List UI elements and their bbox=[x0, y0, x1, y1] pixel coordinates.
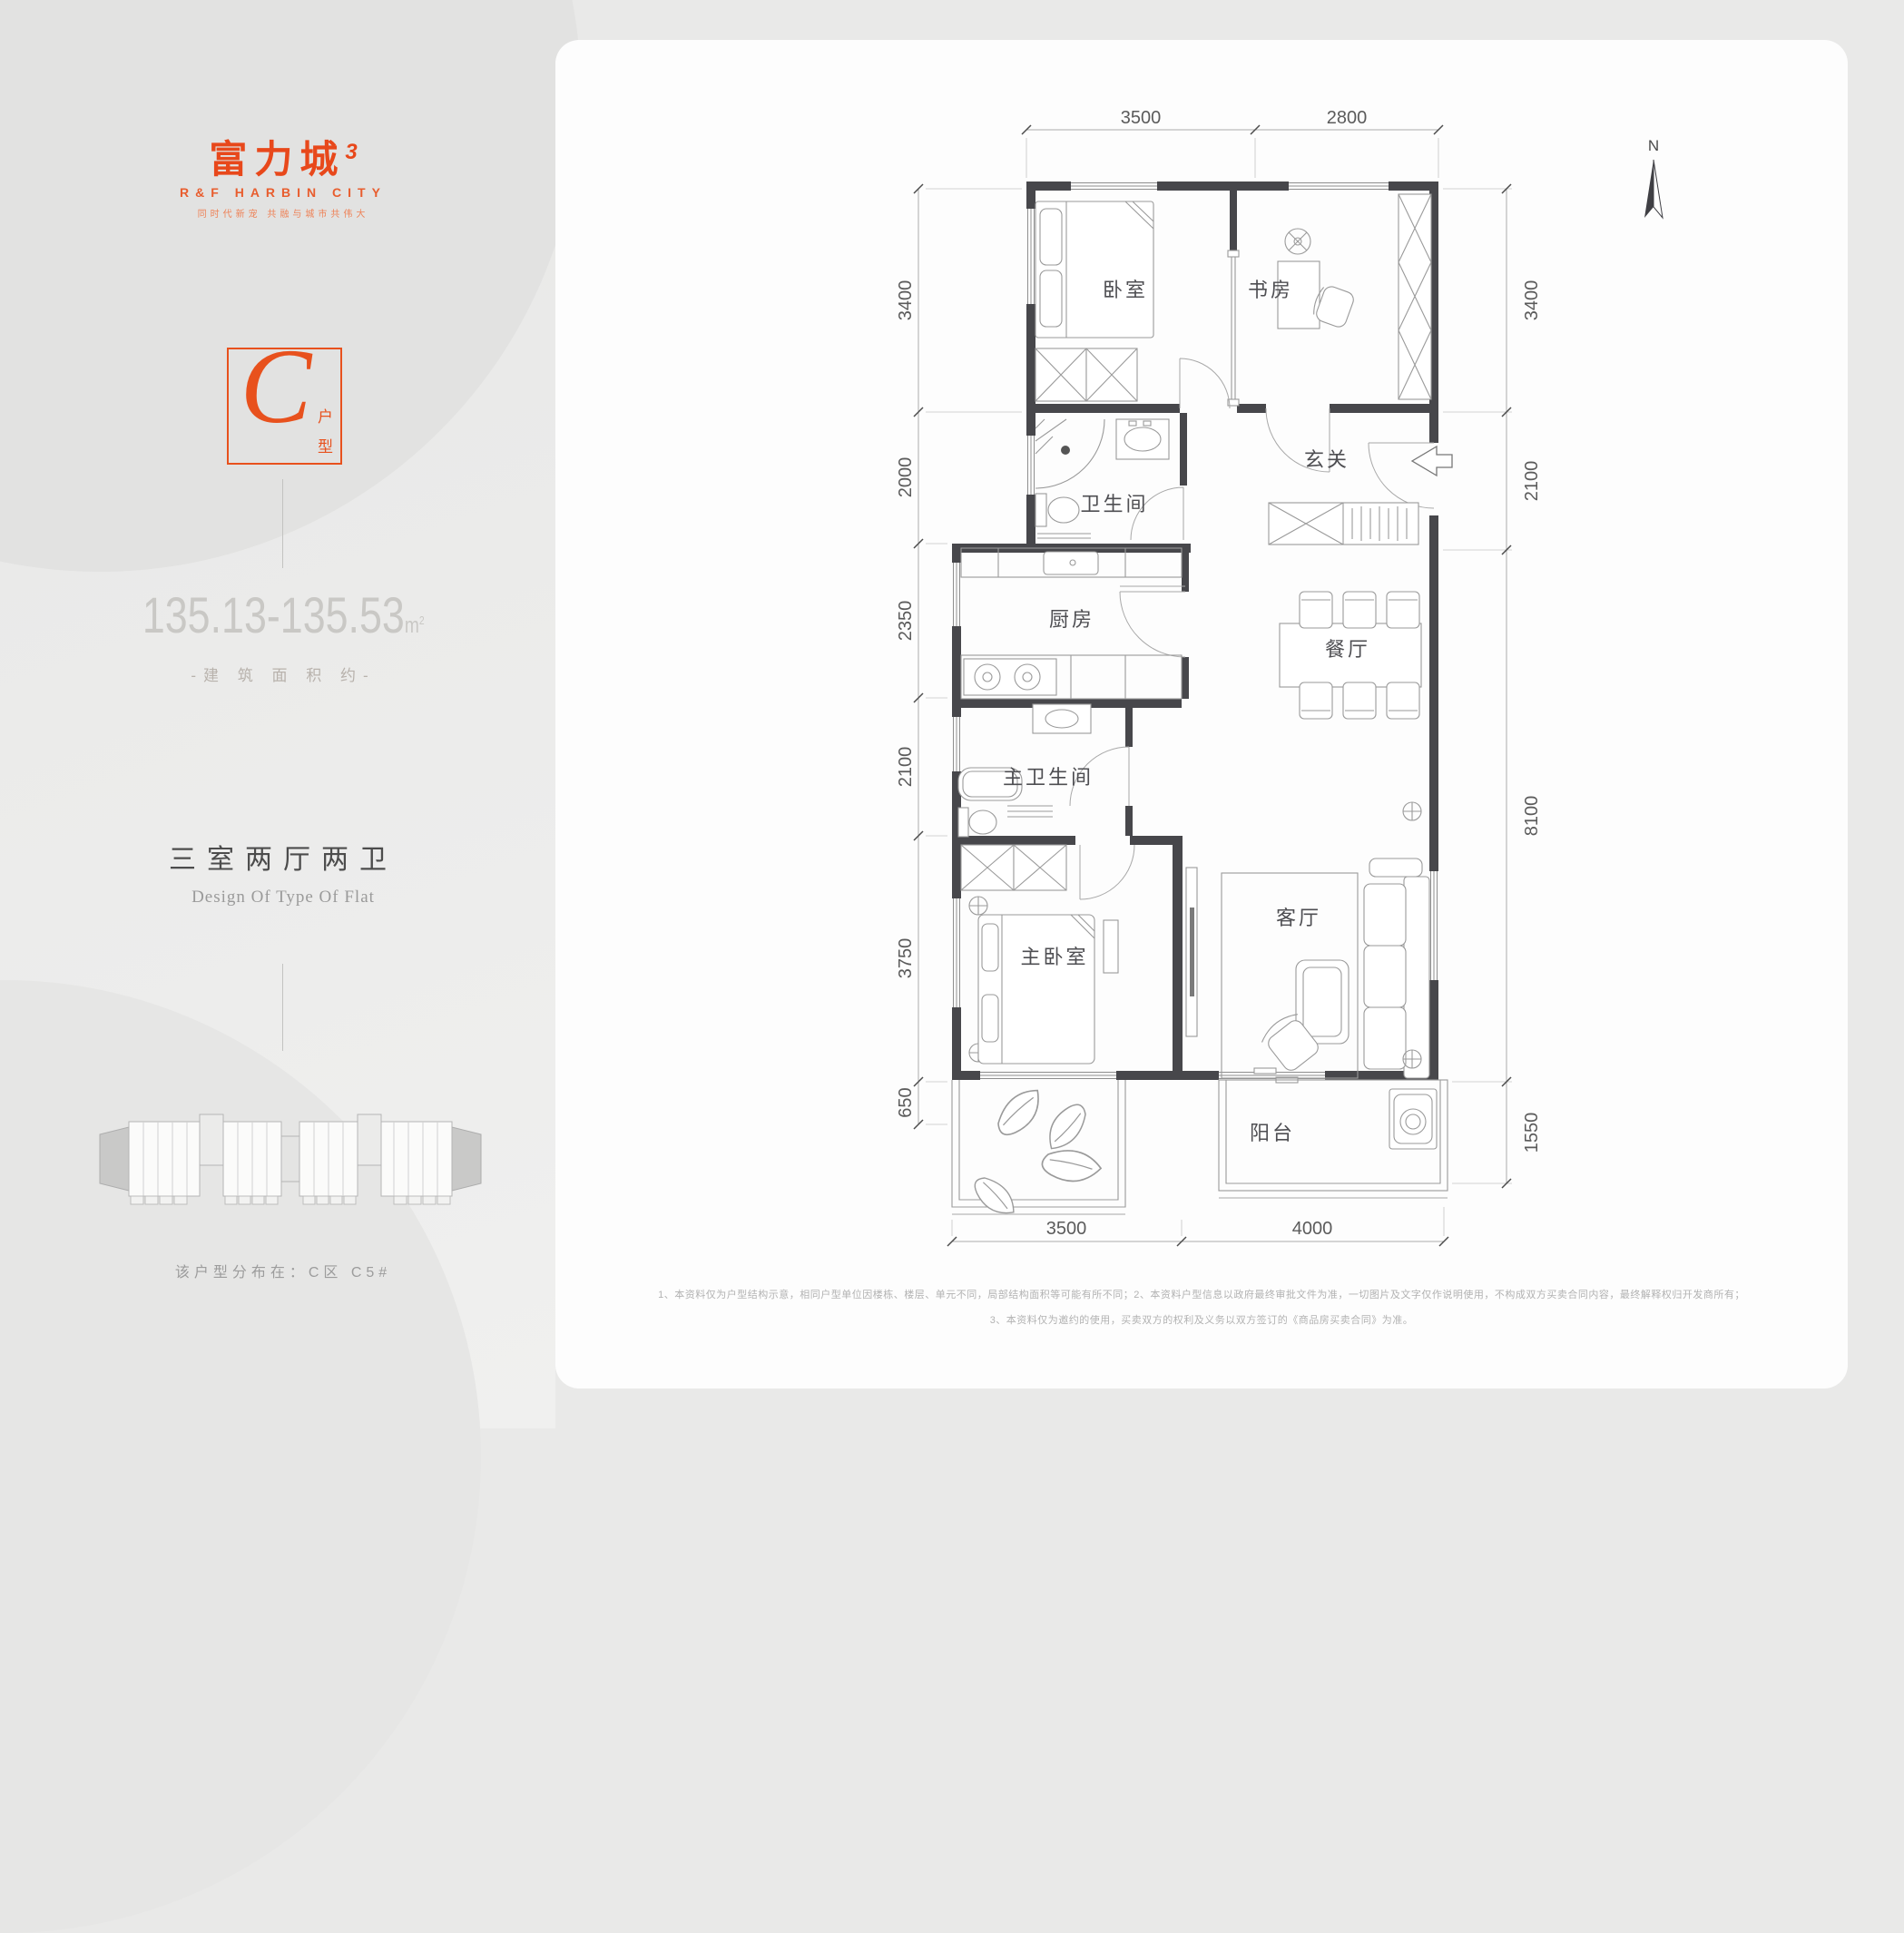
area-value: 135.13-135.53 bbox=[142, 586, 405, 643]
area-range: 135.13-135.53m2 bbox=[5, 585, 561, 644]
layout-subtitle: Design Of Type Of Flat bbox=[5, 888, 561, 908]
brand-logo-main: 富力城 bbox=[209, 138, 345, 181]
unit-type-char-2: 型 bbox=[318, 439, 333, 455]
disclaimer-line-1: 1、本资料仅为户型结构示意，相同户型单位因楼栋、楼层、单元不同，局部结构面积等可… bbox=[555, 1287, 1848, 1301]
brand-logo-sup: 3 bbox=[345, 140, 357, 164]
unit-type-char-1: 户 bbox=[318, 409, 333, 425]
brand-logo: 富力城3 bbox=[5, 129, 561, 184]
brand-column: 富力城3 R&F HARBIN CITY 同时代新宠 共融与城市共伟大 C 户 … bbox=[5, 0, 561, 1428]
unit-type-badge: C 户 型 bbox=[227, 348, 342, 465]
distribution-note: 该户型分布在：C区 C5# bbox=[5, 1260, 561, 1281]
layout-title: 三室两厅两卫 bbox=[5, 837, 561, 877]
floorplan-card bbox=[555, 40, 1848, 1388]
brand-logo-english: R&F HARBIN CITY bbox=[5, 185, 561, 200]
divider-line-bottom bbox=[282, 964, 283, 1051]
area-caption: -建 筑 面 积 约- bbox=[5, 662, 561, 685]
area-unit: m2 bbox=[405, 613, 425, 638]
unit-type-letter: C bbox=[231, 322, 321, 451]
disclaimer-line-2: 3、本资料仅为邀约的使用，买卖双方的权利及义务以双方签订的《商品房买卖合同》为准… bbox=[555, 1312, 1848, 1327]
building-locator bbox=[91, 1082, 490, 1241]
brand-slogan: 同时代新宠 共融与城市共伟大 bbox=[5, 206, 561, 220]
divider-line-top bbox=[282, 479, 283, 568]
unit-type-label: 户 型 bbox=[318, 409, 333, 469]
